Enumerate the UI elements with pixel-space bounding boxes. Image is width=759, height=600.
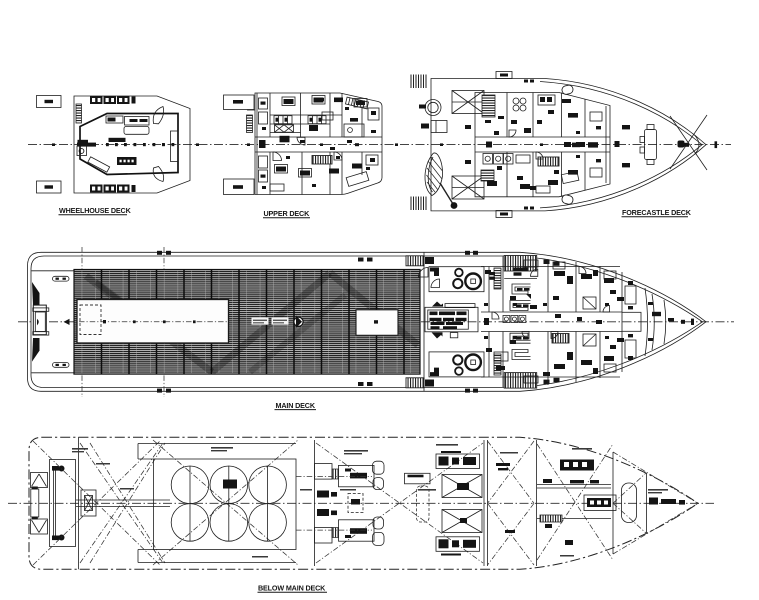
- svg-text:UPPER DECK: UPPER DECK: [264, 209, 311, 218]
- svg-text:MAIN DECK: MAIN DECK: [276, 401, 316, 410]
- svg-text:BELOW MAIN DECK: BELOW MAIN DECK: [258, 584, 326, 593]
- svg-text:WHEELHOUSE DECK: WHEELHOUSE DECK: [59, 206, 132, 215]
- svg-text:FORECASTLE DECK: FORECASTLE DECK: [622, 208, 692, 217]
